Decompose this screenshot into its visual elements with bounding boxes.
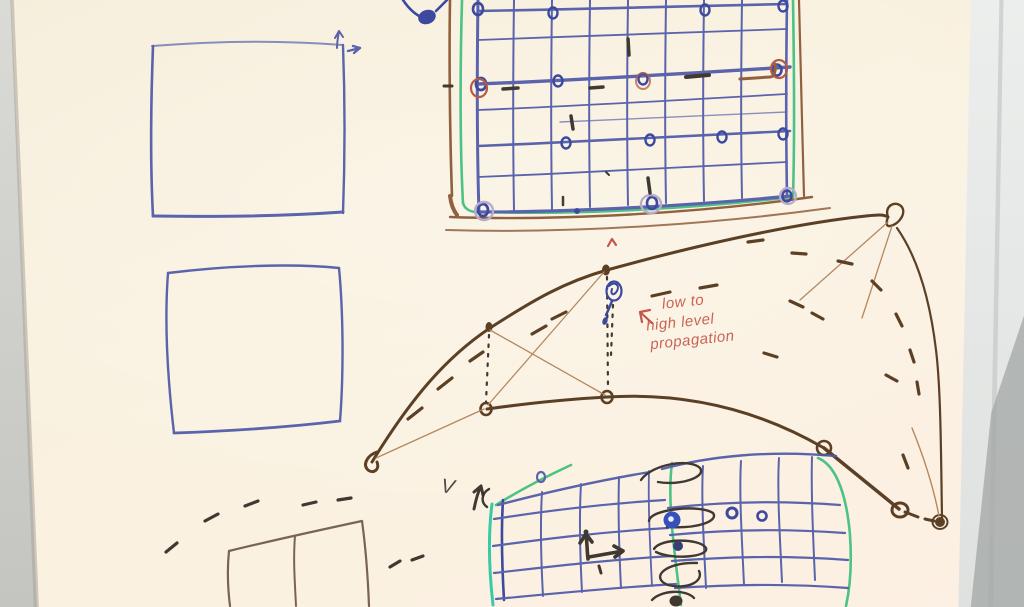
sketch-square-1 — [151, 31, 360, 216]
curl-arrow-icon — [403, 0, 447, 27]
coarse-grid-lines — [477, 0, 790, 213]
door-panels-sketch — [228, 521, 369, 606]
net-dashes — [408, 240, 919, 468]
seam-coils — [483, 463, 714, 600]
red-tick-icon — [608, 239, 616, 246]
axes-arrows — [580, 530, 623, 574]
sketch-square-2 — [166, 266, 342, 433]
whiteboard-drawing — [0, 0, 1024, 607]
net-corner-loop — [887, 204, 904, 226]
coarse-grid-red-circles — [471, 60, 787, 97]
coarse-grid — [444, 0, 830, 231]
blue-figure-glyph — [601, 282, 621, 326]
right-arrow-icon — [348, 46, 360, 53]
fine-grid — [483, 454, 851, 607]
whiteboard-photo: low to high level propagation V — [0, 0, 1024, 607]
red-annotation: low to high level propagation — [643, 288, 735, 355]
net-lower-chord — [487, 396, 824, 448]
coarse-grid-tick-marks — [444, 39, 709, 205]
net-dotted-droplines — [486, 277, 613, 402]
net-right-curve — [897, 228, 942, 518]
